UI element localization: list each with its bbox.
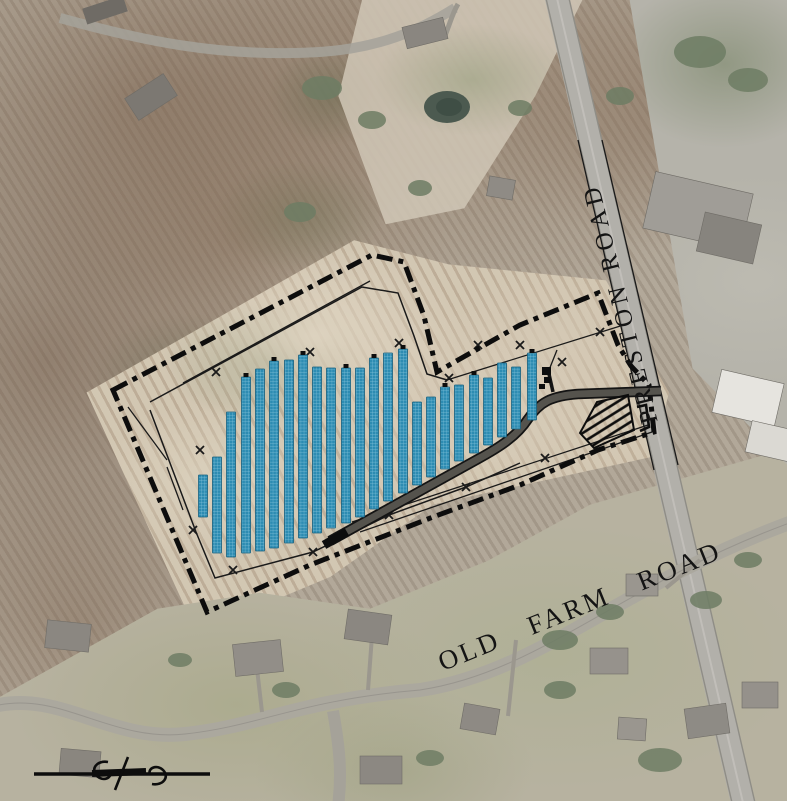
plan-overlay-svg [0, 0, 787, 801]
access-road-end [324, 532, 347, 545]
equipment-icon [539, 384, 545, 389]
solar-panel-row [199, 475, 208, 517]
panel-row-cap [244, 373, 249, 377]
solar-panel-row [528, 353, 537, 420]
solar-panel-row [413, 402, 422, 485]
solar-panel-row [484, 378, 493, 445]
solar-panel-row [213, 457, 222, 553]
plan-thin-line [128, 407, 167, 460]
solar-panel-row [342, 368, 351, 523]
branch-road-bottom [333, 711, 340, 801]
solar-panel-row [256, 369, 265, 551]
solar-panel-row [427, 397, 436, 477]
solar-panel-row [313, 367, 322, 533]
site-plan-map: PRESTON ROAD OLD FARM ROAD [0, 0, 787, 801]
panel-row-cap [530, 349, 535, 353]
solar-panel-row [441, 387, 450, 469]
solar-panel-row [470, 375, 479, 453]
driveway-3 [368, 636, 372, 690]
solar-panel-row [327, 368, 336, 528]
solar-panel-row [285, 360, 294, 543]
buildings [45, 0, 787, 784]
solar-panel-row [227, 412, 236, 557]
panel-row-cap [301, 351, 306, 355]
panel-row-cap [372, 354, 377, 358]
fence-x-mark [558, 358, 566, 366]
pond-center [436, 98, 462, 116]
equipment-icon [542, 367, 551, 375]
solar-panel-row [455, 385, 464, 461]
fence-x-mark [196, 446, 204, 454]
solar-panel-row [356, 368, 365, 517]
fence-x-mark [516, 341, 524, 349]
solar-panel-row [498, 363, 507, 437]
panel-row-cap [443, 383, 448, 387]
panel-row-cap [272, 357, 277, 361]
solar-panel-row [242, 377, 251, 553]
solar-panel-row [370, 358, 379, 509]
top-road [60, 8, 455, 53]
plan-thin-line [167, 467, 183, 510]
equipment-icon [544, 377, 551, 383]
solar-panel-row [512, 367, 521, 429]
panel-row-cap [401, 345, 406, 349]
solar-panel-row [270, 361, 279, 548]
solar-panel-row [384, 353, 393, 501]
panel-row-cap [472, 371, 477, 375]
solar-panel-row [399, 349, 408, 493]
solar-panel-row [299, 355, 308, 538]
panel-row-cap [344, 364, 349, 368]
fence-x-mark [212, 368, 220, 376]
